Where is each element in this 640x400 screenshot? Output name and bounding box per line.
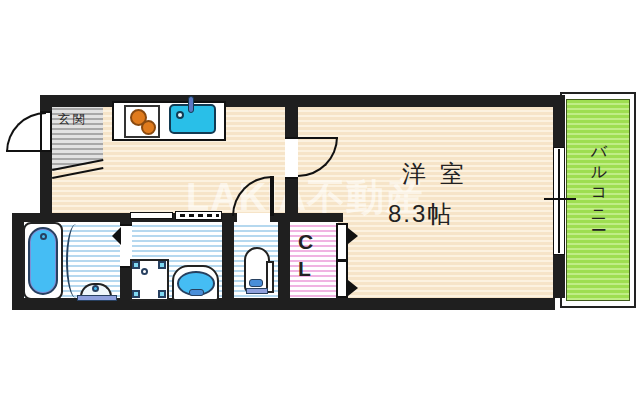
window-center-mark-v <box>558 188 560 210</box>
closet-door-fold-icon-2 <box>348 280 358 296</box>
wall-wash-toilet-divider <box>222 222 234 298</box>
washer-pan-corner-3 <box>132 290 140 298</box>
washer-pan-corner-1 <box>132 261 140 269</box>
sink-drain <box>176 111 184 119</box>
entrance-door-arc <box>6 112 46 152</box>
closet-label-l: L <box>298 255 313 282</box>
washbasin-ledge <box>189 289 204 296</box>
accordion-door-dashes <box>180 214 219 217</box>
washer-pan-corner-4 <box>158 290 166 298</box>
bath-counter-base <box>77 295 117 301</box>
floorplan: LAKIA不動産 <box>0 0 640 400</box>
bathroom-door-fold-icon <box>112 227 121 245</box>
closet-label-c: C <box>298 228 313 255</box>
main-room-size: 8.3帖 <box>388 198 453 230</box>
washroom-accordion-door <box>175 211 222 220</box>
closet-door-panel-1 <box>336 223 348 261</box>
balcony-label: バルコニー <box>588 133 609 293</box>
room-door-leaf-line <box>298 137 338 139</box>
wall-toilet-closet-divider <box>278 222 290 298</box>
wall-kitchen-room-upper <box>285 107 298 139</box>
wall-right-upper <box>553 95 565 149</box>
toilet-door-leaf-line <box>270 176 274 216</box>
bathtub-drain <box>40 233 47 240</box>
stove-burner-2 <box>141 120 156 135</box>
closet-label: C L <box>298 228 313 282</box>
entrance-door-swing-line <box>6 150 46 152</box>
washroom-sliding-door <box>130 212 173 219</box>
washer-pan-drain <box>141 268 148 275</box>
main-room-label: 洋室 <box>402 158 478 190</box>
window-center-mark-h <box>544 198 576 200</box>
washer-pan-corner-2 <box>158 261 166 269</box>
closet-door-panel-2 <box>336 260 348 298</box>
closet-door-fold-icon-1 <box>348 228 358 244</box>
wall-right-lower <box>553 253 565 298</box>
room-door-opening <box>285 137 298 179</box>
toilet-base <box>246 288 268 294</box>
toilet-seat <box>249 279 263 287</box>
bath-counter-knob <box>92 285 99 292</box>
wall-left-lower <box>40 150 52 215</box>
entrance-label: 玄関 <box>58 111 88 128</box>
faucet-icon <box>188 96 194 113</box>
